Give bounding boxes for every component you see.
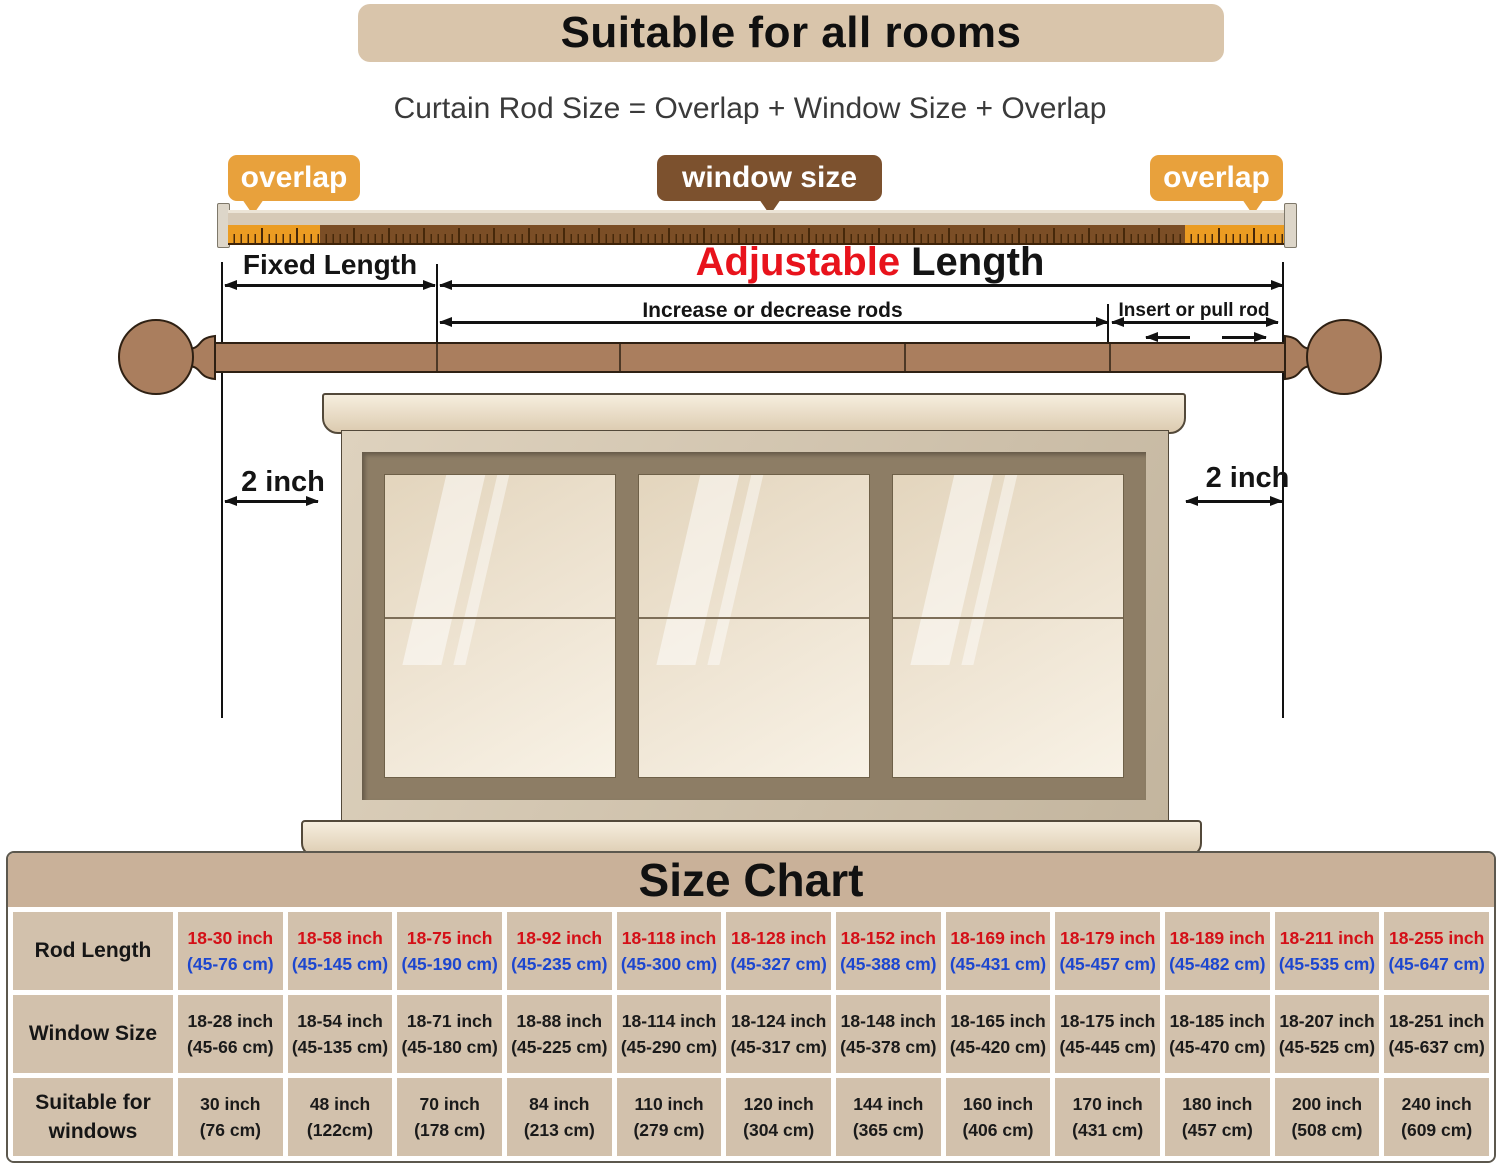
cell-inch-value: 144 inch [853,1094,923,1115]
cell-inch-value: 18-175 inch [1060,1011,1155,1032]
cell-inch-value: 120 inch [744,1094,814,1115]
size-chart-cell: 48 inch(122cm) [288,1078,393,1156]
cell-cm-value: (45-327 cm) [731,954,827,975]
cell-cm-value: (45-180 cm) [402,1037,498,1058]
cell-cm-value: (457 cm) [1182,1120,1253,1141]
cell-cm-value: (45-431 cm) [950,954,1046,975]
cell-cm-value: (45-420 cm) [950,1037,1046,1058]
cell-inch-value: 18-189 inch [1170,928,1265,949]
size-chart-cell: 18-92 inch(45-235 cm) [507,912,612,990]
tape-ruler-overlap-left [228,225,320,245]
window-pane [638,474,870,778]
window-cornice [322,393,1186,434]
cell-inch-value: 18-54 inch [297,1011,383,1032]
size-chart-cell: 18-88 inch(45-225 cm) [507,995,612,1073]
window-pane [892,474,1124,778]
cell-cm-value: (178 cm) [414,1120,485,1141]
size-chart-cell: 18-124 inch(45-317 cm) [726,995,831,1073]
size-chart-cell: 18-165 inch(45-420 cm) [946,995,1051,1073]
cell-cm-value: (609 cm) [1401,1120,1472,1141]
size-chart-cell: 18-54 inch(45-135 cm) [288,995,393,1073]
cell-inch-value: 18-148 inch [841,1011,936,1032]
cell-inch-value: 84 inch [529,1094,589,1115]
rod-bar [215,343,1285,372]
size-chart-cell: 18-118 inch(45-300 cm) [617,912,722,990]
size-chart-row-label: Suitable for windows [13,1078,173,1156]
cell-inch-value: 160 inch [963,1094,1033,1115]
size-chart-cell: 144 inch(365 cm) [836,1078,941,1156]
two-inch-left-label: 2 inch [228,466,338,499]
cell-inch-value: 18-88 inch [517,1011,603,1032]
size-chart-cell: 18-148 inch(45-378 cm) [836,995,941,1073]
cell-cm-value: (45-290 cm) [621,1037,717,1058]
cell-inch-value: 240 inch [1402,1094,1472,1115]
size-chart-cell: 18-211 inch(45-535 cm) [1275,912,1380,990]
length-word: Length [911,240,1044,284]
size-chart-cell: 18-71 inch(45-180 cm) [397,995,502,1073]
size-chart-cell: 180 inch(457 cm) [1165,1078,1270,1156]
cell-inch-value: 18-28 inch [188,1011,274,1032]
cell-inch-value: 30 inch [200,1094,260,1115]
cell-cm-value: (45-225 cm) [511,1037,607,1058]
size-chart-cell: 120 inch(304 cm) [726,1078,831,1156]
cell-cm-value: (45-637 cm) [1389,1037,1485,1058]
size-chart-cell: 70 inch(178 cm) [397,1078,502,1156]
overlap-left-label: overlap [241,161,348,195]
cell-inch-value: 18-75 inch [407,928,493,949]
cell-inch-value: 48 inch [310,1094,370,1115]
pane-divider [639,617,869,619]
cell-inch-value: 18-251 inch [1389,1011,1484,1032]
cell-inch-value: 18-92 inch [517,928,603,949]
cell-inch-value: 18-124 inch [731,1011,826,1032]
cell-cm-value: (406 cm) [962,1120,1033,1141]
cell-cm-value: (45-66 cm) [187,1037,274,1058]
fixed-length-arrow [225,284,435,287]
cell-inch-value: 110 inch [634,1094,703,1115]
cell-inch-value: 18-114 inch [622,1011,716,1032]
cell-cm-value: (45-235 cm) [511,954,607,975]
cell-cm-value: (45-457 cm) [1060,954,1156,975]
cell-inch-value: 18-207 inch [1279,1011,1374,1032]
size-chart-cell: 18-169 inch(45-431 cm) [946,912,1051,990]
overlap-right-bubble: overlap [1150,155,1283,201]
cell-cm-value: (76 cm) [200,1120,261,1141]
cell-inch-value: 18-169 inch [950,928,1045,949]
pane-divider [385,617,615,619]
cell-inch-value: 18-118 inch [622,928,716,949]
cell-cm-value: (45-445 cm) [1060,1037,1156,1058]
size-chart: Size Chart Rod Length18-30 inch(45-76 cm… [6,851,1496,1163]
size-chart-cell: 30 inch(76 cm) [178,1078,283,1156]
cell-inch-value: 18-152 inch [841,928,936,949]
size-chart-cell: 18-255 inch(45-647 cm) [1384,912,1489,990]
cell-cm-value: (45-135 cm) [292,1037,388,1058]
size-chart-cell: 170 inch(431 cm) [1055,1078,1160,1156]
finial-ball-right [1307,320,1381,394]
cell-inch-value: 180 inch [1182,1094,1252,1115]
cell-inch-value: 18-165 inch [950,1011,1045,1032]
size-chart-cell: 110 inch(279 cm) [617,1078,722,1156]
size-chart-cell: 18-128 inch(45-327 cm) [726,912,831,990]
cell-inch-value: 170 inch [1073,1094,1143,1115]
size-chart-cell: 18-189 inch(45-482 cm) [1165,912,1270,990]
two-inch-left-arrow [225,500,318,503]
size-chart-cell: 18-251 inch(45-637 cm) [1384,995,1489,1073]
cell-inch-value: 200 inch [1292,1094,1362,1115]
infographic-canvas: Suitable for all rooms Curtain Rod Size … [0,0,1500,1165]
size-chart-cell: 84 inch(213 cm) [507,1078,612,1156]
page-title: Suitable for all rooms [561,8,1022,58]
cell-cm-value: (45-145 cm) [292,954,388,975]
cell-cm-value: (45-535 cm) [1279,954,1375,975]
cell-inch-value: 18-211 inch [1280,928,1374,949]
cell-cm-value: (279 cm) [633,1120,704,1141]
size-chart-cell: 240 inch(609 cm) [1384,1078,1489,1156]
cell-inch-value: 18-71 inch [407,1011,493,1032]
cell-cm-value: (508 cm) [1291,1120,1362,1141]
title-banner: Suitable for all rooms [358,4,1224,62]
cell-cm-value: (45-300 cm) [621,954,717,975]
formula-text: Curtain Rod Size = Overlap + Window Size… [0,92,1500,126]
cell-cm-value: (45-388 cm) [840,954,936,975]
size-chart-cell: 200 inch(508 cm) [1275,1078,1380,1156]
cell-cm-value: (45-647 cm) [1389,954,1485,975]
fixed-length-label: Fixed Length [230,249,430,281]
size-chart-cell: 18-175 inch(45-445 cm) [1055,995,1160,1073]
cell-cm-value: (213 cm) [524,1120,595,1141]
size-chart-cell: 18-30 inch(45-76 cm) [178,912,283,990]
overlap-left-bubble: overlap [228,155,360,201]
two-inch-right-arrow [1186,500,1282,503]
cell-cm-value: (431 cm) [1072,1120,1143,1141]
size-chart-cell: 18-207 inch(45-525 cm) [1275,995,1380,1073]
cell-cm-value: (365 cm) [853,1120,924,1141]
size-chart-row-label: Window Size [13,995,173,1073]
size-chart-cell: 18-114 inch(45-290 cm) [617,995,722,1073]
window-glass-row [384,474,1124,778]
cell-cm-value: (122cm) [307,1120,373,1141]
cell-cm-value: (304 cm) [743,1120,814,1141]
cell-cm-value: (45-482 cm) [1169,954,1265,975]
cell-inch-value: 18-255 inch [1389,928,1484,949]
size-chart-title: Size Chart [8,853,1494,907]
adjustable-length-label: AdjustableLength [450,240,1290,285]
two-inch-right-label: 2 inch [1190,462,1305,495]
size-chart-cell: 18-75 inch(45-190 cm) [397,912,502,990]
window-pane [384,474,616,778]
cell-inch-value: 18-128 inch [731,928,826,949]
size-chart-cell: 18-179 inch(45-457 cm) [1055,912,1160,990]
size-chart-row-label: Rod Length [13,912,173,990]
window-size-bubble: window size [657,155,882,201]
size-chart-cell: 18-58 inch(45-145 cm) [288,912,393,990]
cell-cm-value: (45-470 cm) [1169,1037,1265,1058]
cell-inch-value: 18-179 inch [1060,928,1155,949]
size-chart-grid: Rod Length18-30 inch(45-76 cm)18-58 inch… [8,907,1494,1161]
pane-divider [893,617,1123,619]
window-size-label: window size [682,161,857,195]
adjustable-length-arrow [440,284,1283,287]
cell-cm-value: (45-190 cm) [402,954,498,975]
cell-cm-value: (45-525 cm) [1279,1037,1375,1058]
cell-cm-value: (45-317 cm) [731,1037,827,1058]
adjustable-word: Adjustable [696,240,900,284]
size-chart-cell: 160 inch(406 cm) [946,1078,1051,1156]
cell-inch-value: 18-185 inch [1170,1011,1265,1032]
overlap-right-label: overlap [1163,161,1270,195]
size-chart-cell: 18-28 inch(45-66 cm) [178,995,283,1073]
cell-inch-value: 18-30 inch [188,928,274,949]
size-chart-cell: 18-185 inch(45-470 cm) [1165,995,1270,1073]
cell-cm-value: (45-76 cm) [187,954,274,975]
finial-ball-left [119,320,193,394]
cell-inch-value: 70 inch [420,1094,480,1115]
cell-cm-value: (45-378 cm) [840,1037,936,1058]
cell-inch-value: 18-58 inch [297,928,383,949]
size-chart-cell: 18-152 inch(45-388 cm) [836,912,941,990]
